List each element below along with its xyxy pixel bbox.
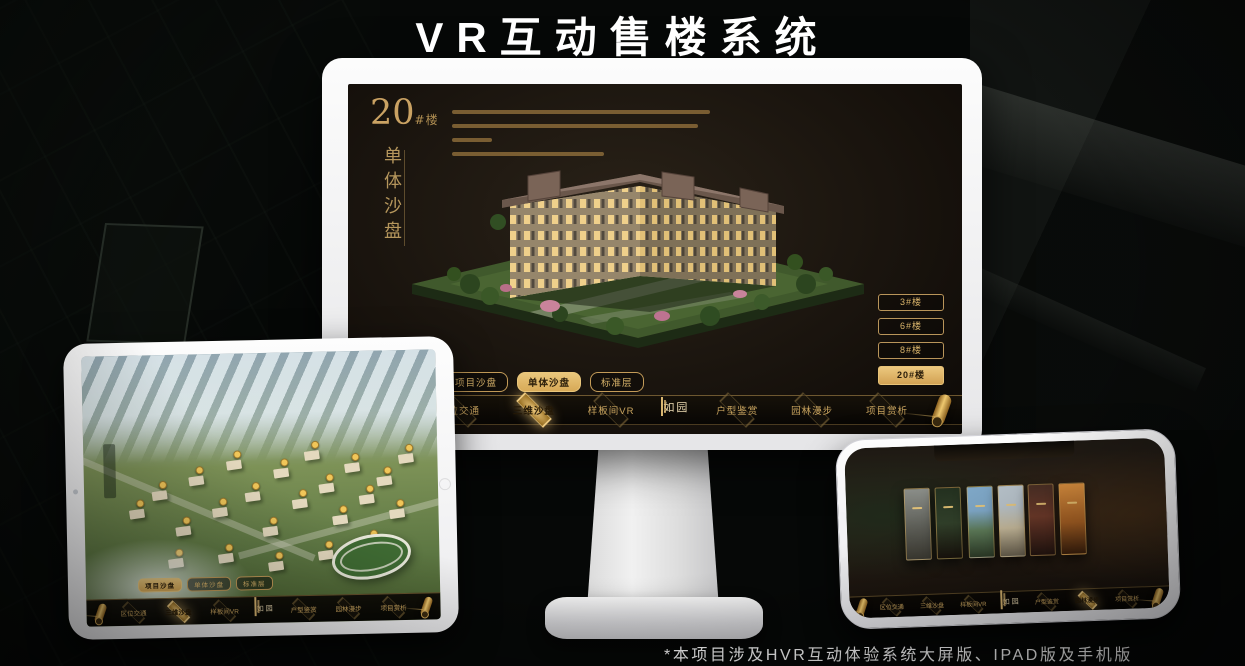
nav-item-unit-plans[interactable]: 户型鉴赏	[1033, 596, 1061, 606]
description-text-lines	[452, 110, 710, 166]
aerial-building	[175, 526, 191, 537]
gallery-panel[interactable]	[904, 488, 932, 561]
background-plaque	[86, 223, 203, 345]
building-badge	[219, 498, 227, 506]
nav-item-unit-plans[interactable]: 户型鉴赏	[710, 403, 764, 417]
gallery-panel[interactable]	[1027, 483, 1055, 556]
nav-item-3d-sandtable[interactable]: 三维沙盘	[918, 600, 946, 610]
brand-logo[interactable]: 如园	[661, 399, 689, 415]
building-badge	[351, 453, 359, 461]
aerial-city-blocks	[81, 349, 437, 464]
gallery-panel[interactable]	[1058, 482, 1086, 555]
aerial-building	[226, 460, 242, 471]
tablet-device: 项目沙盘 单体沙盘 标准层 区位交通 三维沙盘 样板间VR 如园 户型鉴赏 园林…	[63, 336, 459, 640]
monitor-stand-base	[545, 597, 763, 639]
building-badge	[396, 499, 404, 507]
aerial-building	[268, 561, 284, 572]
aerial-building	[318, 483, 334, 494]
nav-item-location[interactable]: 区位交通	[878, 602, 906, 612]
scroll-icon[interactable]	[930, 393, 953, 428]
building-sandtable-render[interactable]	[410, 164, 868, 352]
tablet-screen: 项目沙盘 单体沙盘 标准层 区位交通 三维沙盘 样板间VR 如园 户型鉴赏 园林…	[81, 349, 441, 626]
aerial-building	[344, 462, 360, 473]
phone-nav-bar: 区位交通 三维沙盘 样板间VR 如园 户型鉴赏 园林漫步 项目赏析	[849, 585, 1170, 618]
scroll-icon[interactable]	[94, 603, 108, 625]
building-badge	[311, 441, 319, 449]
ceiling-beam	[934, 441, 1075, 462]
scroll-icon[interactable]	[1151, 587, 1165, 608]
scroll-icon[interactable]	[855, 597, 869, 618]
nav-item-showroom-vr[interactable]: 样板间VR	[958, 599, 989, 609]
building-badge	[384, 466, 392, 474]
nav-item-location[interactable]: 区位交通	[117, 607, 149, 618]
gallery-panel[interactable]	[966, 486, 994, 559]
nav-item-project-gallery[interactable]: 项目赏析	[377, 602, 409, 613]
aerial-building	[188, 475, 204, 486]
nav-item-project-gallery[interactable]: 项目赏析	[860, 403, 914, 417]
building-badge	[136, 499, 144, 507]
building-badge	[366, 485, 374, 493]
aerial-building	[212, 507, 228, 518]
map-label	[103, 444, 116, 498]
tablet-subtabs: 项目沙盘 单体沙盘 标准层	[138, 576, 273, 593]
footnote: *本项目涉及HVR互动体验系统大屏版、IPAD版及手机版	[664, 641, 1133, 665]
aerial-building	[262, 526, 278, 537]
nav-item-3d-sandtable[interactable]: 三维沙盘	[507, 403, 561, 417]
building-number-heading: 20#楼	[370, 96, 439, 131]
monitor-stand-neck	[583, 448, 723, 606]
aerial-building	[129, 509, 145, 520]
subtitle-divider	[404, 150, 405, 246]
phone-device: 区位交通 三维沙盘 样板间VR 如园 户型鉴赏 园林漫步 项目赏析	[835, 428, 1181, 630]
nav-item-showroom-vr[interactable]: 样板间VR	[582, 403, 641, 417]
nav-item-garden-walk[interactable]: 园林漫步	[1073, 595, 1101, 605]
nav-item-garden-walk[interactable]: 园林漫步	[785, 403, 839, 417]
building-badge	[183, 516, 191, 524]
building-badge	[339, 505, 347, 513]
subtab-standard-floor[interactable]: 标准层	[236, 576, 273, 591]
nav-item-3d-sandtable[interactable]: 三维沙盘	[162, 606, 194, 617]
building-badge	[196, 466, 204, 474]
page-title: VR互动售楼系统	[0, 4, 1245, 65]
gallery-panel[interactable]	[935, 487, 963, 560]
stadium	[328, 527, 415, 586]
aerial-building	[273, 468, 289, 479]
aerial-building	[245, 491, 261, 502]
scroll-icon[interactable]	[419, 596, 433, 618]
aerial-building	[292, 498, 308, 509]
subtitle-vertical: 单体沙盘	[378, 146, 404, 246]
building-badge	[275, 552, 283, 560]
phone-screen: 区位交通 三维沙盘 样板间VR 如园 户型鉴赏 园林漫步 项目赏析	[844, 438, 1170, 619]
home-button[interactable]	[439, 478, 451, 490]
floor-button-20[interactable]: 20#楼	[878, 366, 944, 385]
building-badge	[252, 482, 260, 490]
floor-button-group: 3#楼 6#楼 8#楼 20#楼	[878, 294, 946, 392]
nav-item-unit-plans[interactable]: 户型鉴赏	[288, 604, 320, 615]
brand-logo[interactable]: 如园	[255, 599, 275, 615]
floor-button-3[interactable]: 3#楼	[878, 294, 944, 311]
building-badge	[326, 473, 334, 481]
nav-item-garden-walk[interactable]: 园林漫步	[332, 603, 364, 614]
building-badge	[159, 481, 167, 489]
floor-button-6[interactable]: 6#楼	[878, 318, 944, 335]
subtab-standard-floor[interactable]: 标准层	[590, 372, 644, 392]
aerial-building	[359, 494, 375, 505]
gallery-panel[interactable]	[997, 484, 1025, 557]
building-badge	[225, 544, 233, 552]
building-badge	[280, 458, 288, 466]
camera-icon	[73, 489, 78, 494]
building-badge	[299, 489, 307, 497]
nav-item-showroom-vr[interactable]: 样板间VR	[207, 605, 242, 616]
subtab-single-sandtable[interactable]: 单体沙盘	[517, 372, 581, 392]
aerial-building	[398, 453, 414, 464]
building-badge	[270, 517, 278, 525]
building-badge	[325, 541, 333, 549]
aerial-building	[389, 508, 405, 519]
subtab-single-sandtable[interactable]: 单体沙盘	[187, 577, 231, 592]
subtab-project-sandtable[interactable]: 项目沙盘	[138, 578, 182, 593]
floor-button-8[interactable]: 8#楼	[878, 342, 944, 359]
nav-item-project-gallery[interactable]: 项目赏析	[1113, 593, 1141, 603]
building-number-suffix: #楼	[415, 113, 439, 127]
sandtable-subtabs: 项目沙盘 单体沙盘 标准层	[444, 372, 644, 392]
brand-logo[interactable]: 如园	[1000, 591, 1021, 608]
aerial-building	[376, 475, 392, 486]
